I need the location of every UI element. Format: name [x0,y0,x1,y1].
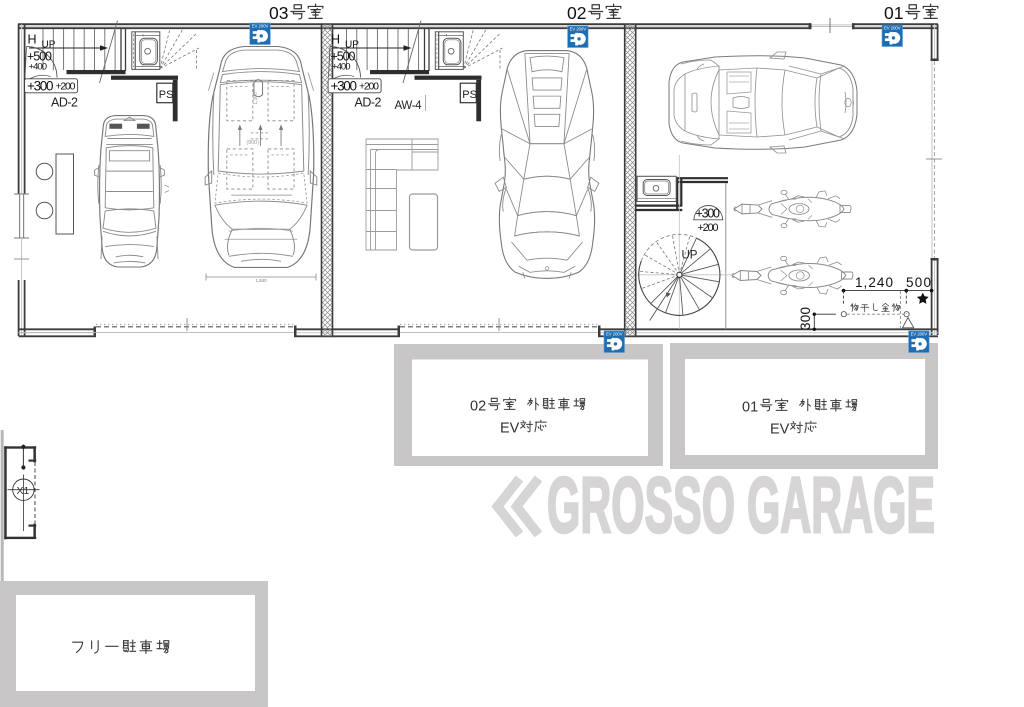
svg-text:GROSSO GARAGE: GROSSO GARAGE [547,460,935,549]
svg-text:1,240: 1,240 [855,275,893,290]
svg-text:01: 01 [742,400,758,416]
svg-text:1,360: 1,360 [253,92,259,105]
svg-text:+400: +400 [332,62,351,73]
svg-text:AD-2: AD-2 [355,96,382,110]
svg-text:PS: PS [159,89,174,101]
svg-text:AD-2: AD-2 [51,96,78,110]
svg-text:EV: EV [500,421,520,437]
svg-text:+200: +200 [698,222,719,234]
svg-text:EV 200V: EV 200V [252,24,269,29]
svg-text:EV 200V: EV 200V [911,332,928,337]
svg-text:500: 500 [906,275,931,290]
svg-text:1,840: 1,840 [255,278,267,283]
svg-text:+300: +300 [696,207,721,221]
svg-text:EV 200V: EV 200V [884,26,901,31]
svg-text:AW-4: AW-4 [395,100,423,112]
svg-text:+300: +300 [331,79,358,94]
svg-text:EV: EV [770,422,790,438]
svg-text:+400: +400 [29,62,48,73]
svg-text:01: 01 [884,3,903,23]
svg-text:+200: +200 [359,81,379,93]
svg-text:UP: UP [682,250,698,262]
svg-text:H: H [331,33,340,47]
svg-text:X1: X1 [17,485,30,497]
svg-text:+300: +300 [27,79,54,94]
svg-text:02: 02 [470,399,486,415]
svg-text:300: 300 [798,307,813,330]
svg-text:PS: PS [462,89,477,101]
svg-text:+200: +200 [56,81,76,93]
svg-text:03: 03 [269,3,288,23]
svg-text:02: 02 [567,3,586,23]
svg-text:(900): (900) [246,140,259,146]
svg-text:H: H [28,33,37,47]
svg-text:EV 200V: EV 200V [606,332,623,337]
svg-text:EV 200V: EV 200V [570,27,587,32]
